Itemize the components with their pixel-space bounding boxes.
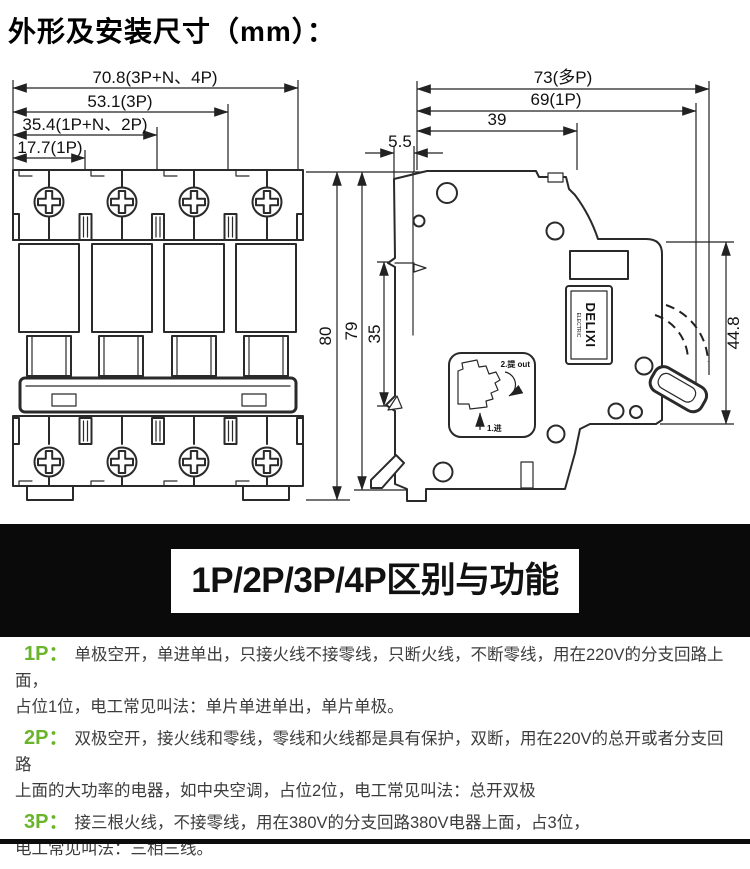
product-detail-image: 外形及安装尺寸（mm）： 70.8(3P+N、4P) [0, 0, 750, 869]
section-2p: 2P：双极空开，接火线和零线，零线和火线都是具有保护，双断，用在220V的总开或… [15, 725, 736, 804]
dim-depth-front: 39 [488, 110, 507, 129]
section-3p: 3P：接三根火线，不接零线，用在380V的分支回路380V电器上面，占3位， 电… [15, 809, 736, 862]
dim-front-height: 80 [316, 327, 335, 346]
dim-width-4p: 70.8(3P+N、4P) [92, 68, 217, 87]
section-1p-text: 单极空开，单进单出，只接火线不接零线，只断火线，不断零线，用在220V的分支回路… [15, 646, 724, 716]
dim-rail-offset: 5.5 [388, 132, 412, 151]
dim-side-height: 79 [342, 322, 361, 341]
brand-plate: DELIXI ELECTRIC [566, 286, 612, 364]
toggle-handle-bar [20, 378, 296, 412]
dimension-diagram: 70.8(3P+N、4P) 53.1(3P) 35.4(1P+N、2P) 17.… [0, 60, 750, 520]
page-title: 外形及安装尺寸（mm）： [8, 10, 336, 50]
pole-descriptions: 1P：单极空开，单进单出，只接火线不接零线，只断火线，不断零线，用在220V的分… [0, 641, 750, 869]
detail-step1-label: 1.进 [487, 423, 502, 433]
banner-title: 1P/2P/3P/4P区别与功能 [171, 549, 579, 613]
dim-depth-1p: 69(1P) [530, 90, 581, 109]
dim-width-2p: 35.4(1P+N、2P) [22, 115, 147, 134]
dim-depth-multi: 73(多P) [534, 68, 593, 87]
section-2p-text: 双极空开，接火线和零线，零线和火线都是具有保护，双断，用在220V的总开或者分支… [15, 730, 724, 800]
dim-rail-slot: 35 [365, 325, 384, 344]
brand-name: DELIXI [583, 303, 598, 348]
section-1p: 1P：单极空开，单进单出，只接火线不接零线，只断火线，不断零线，用在220V的分… [15, 641, 736, 720]
section-2p-label: 2P： [24, 727, 68, 749]
bottom-divider [0, 839, 750, 844]
section-1p-label: 1P： [24, 643, 68, 665]
banner-title-box: 1P/2P/3P/4P区别与功能 [171, 549, 579, 613]
side-view-drawing: 73(多P) 69(1P) 39 5.5 44.8 [365, 68, 743, 501]
detail-step2-label: 2.提 out [501, 359, 531, 369]
section-3p-text: 接三根火线，不接零线，用在380V的分支回路380V电器上面，占3位， 电工常见… [15, 814, 590, 858]
front-view-drawing: 70.8(3P+N、4P) 53.1(3P) 35.4(1P+N、2P) 17.… [13, 68, 303, 500]
section-banner: 1P/2P/3P/4P区别与功能 [0, 524, 750, 637]
section-3p-label: 3P： [24, 811, 68, 833]
dim-front-depth-height: 44.8 [724, 316, 743, 349]
dim-width-1p: 17.7(1P) [17, 138, 82, 157]
dim-width-3p: 53.1(3P) [87, 92, 152, 111]
brand-sub: ELECTRIC [575, 313, 581, 338]
